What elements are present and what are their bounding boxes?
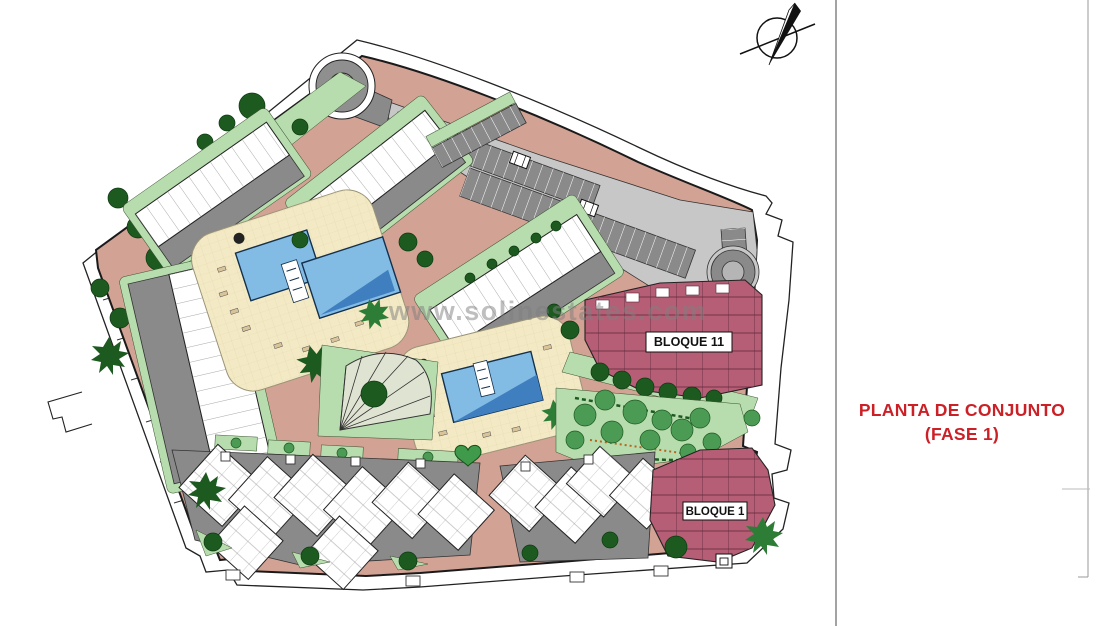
tree-icon bbox=[640, 430, 660, 450]
tree-icon bbox=[399, 233, 417, 251]
bloque-1-label: BLOQUE 1 bbox=[686, 506, 745, 518]
tree-icon bbox=[522, 545, 538, 561]
plan-title-line2: (FASE 1) bbox=[925, 424, 999, 444]
tree-icon bbox=[744, 410, 760, 426]
tree-icon bbox=[465, 273, 475, 283]
tree-icon bbox=[551, 221, 561, 231]
tree-icon bbox=[652, 410, 672, 430]
watermark-text: www.solinestates.com bbox=[388, 296, 708, 326]
boundary-notch bbox=[48, 392, 92, 432]
bloque-1-building: BLOQUE 1 bbox=[650, 448, 783, 568]
tree-icon bbox=[690, 408, 710, 428]
tree-icon bbox=[665, 536, 687, 558]
plan-title: PLANTA DE CONJUNTO (FASE 1) bbox=[859, 400, 1065, 444]
tree-icon bbox=[399, 552, 417, 570]
tree-icon bbox=[636, 378, 654, 396]
tree-icon bbox=[204, 533, 222, 551]
pergola-fan bbox=[318, 345, 438, 440]
north-arrow-icon bbox=[740, 3, 815, 65]
tree-icon bbox=[595, 390, 615, 410]
tree-icon bbox=[417, 251, 433, 267]
tree-icon bbox=[531, 233, 541, 243]
tree-icon bbox=[292, 119, 308, 135]
site-plan-page: BLOQUE 11 bbox=[0, 0, 1110, 626]
tree-icon bbox=[613, 371, 631, 389]
tree-icon bbox=[703, 433, 721, 451]
tree-icon bbox=[574, 404, 596, 426]
site-plan-drawing: BLOQUE 11 bbox=[0, 0, 1110, 626]
tree-icon bbox=[337, 448, 347, 458]
tree-icon bbox=[623, 400, 647, 424]
tree-icon bbox=[487, 259, 497, 269]
tree-icon bbox=[292, 232, 308, 248]
tree-icon bbox=[591, 363, 609, 381]
utility-box-icon bbox=[716, 554, 732, 568]
tree-icon bbox=[602, 532, 618, 548]
tree-icon bbox=[91, 279, 109, 297]
tree-icon bbox=[671, 419, 693, 441]
tree-icon bbox=[601, 421, 623, 443]
tree-icon bbox=[301, 547, 319, 565]
tree-icon bbox=[566, 431, 584, 449]
tree-icon bbox=[231, 438, 241, 448]
bloque-11-label: BLOQUE 11 bbox=[654, 335, 724, 349]
tree-icon bbox=[509, 246, 519, 256]
tree-icon bbox=[361, 381, 387, 407]
plan-title-line1: PLANTA DE CONJUNTO bbox=[859, 400, 1065, 420]
tree-icon bbox=[284, 443, 294, 453]
